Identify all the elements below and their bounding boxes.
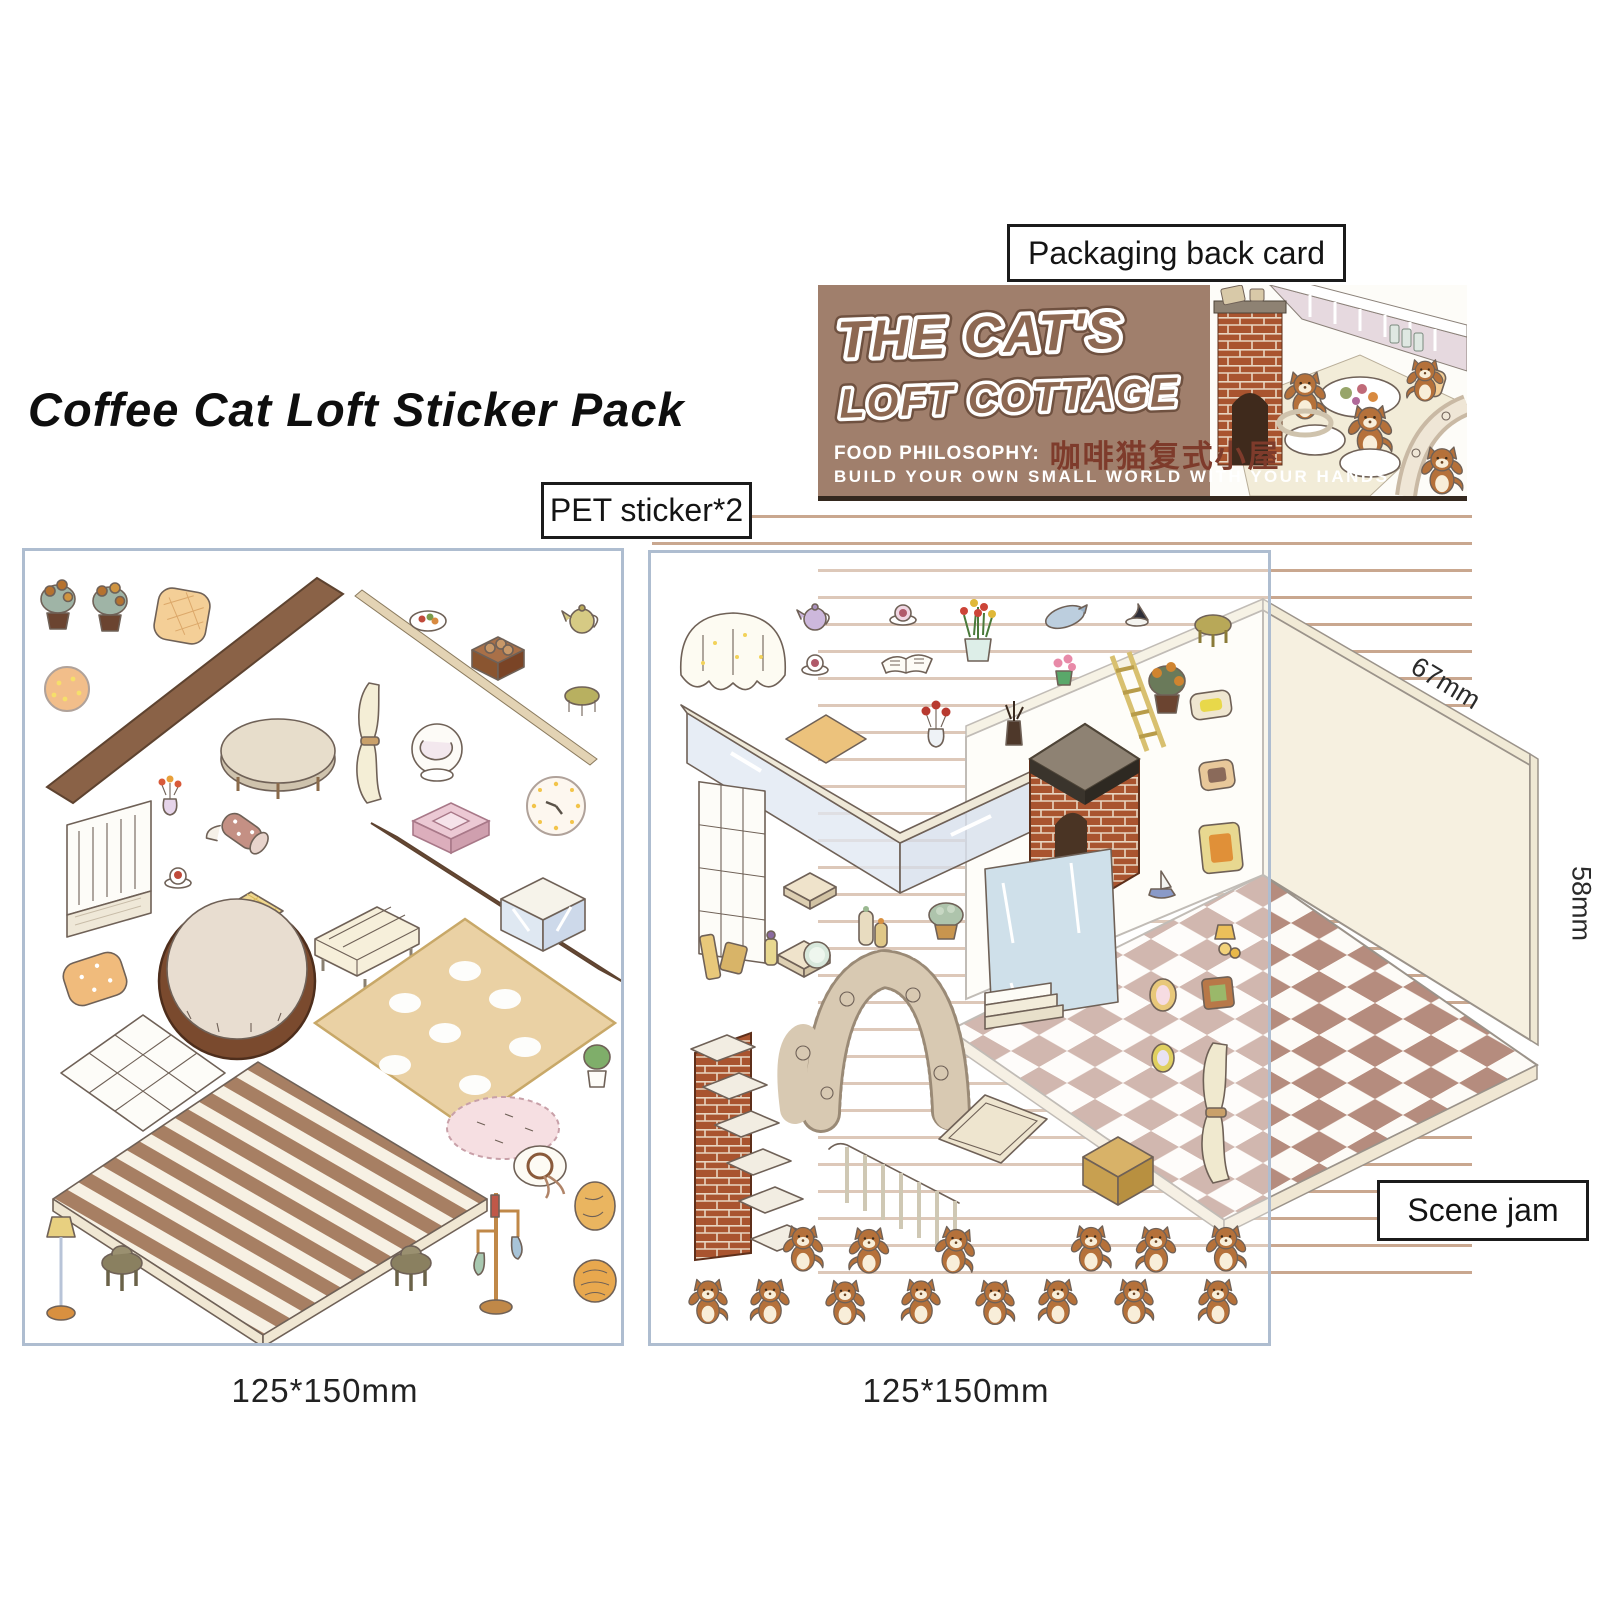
- wall-clock-sticker: [527, 777, 585, 835]
- waffle-cushion-sticker: [152, 586, 212, 646]
- wall-lamp-sticker: [1215, 925, 1240, 958]
- cookie-sticker: [575, 1182, 615, 1230]
- pet-sticker-label: PET sticker*2: [541, 482, 752, 539]
- scene-height-dimension: 58mm: [1566, 861, 1597, 947]
- card-title-line1: THE CAT'S: [836, 302, 1124, 370]
- window-with-steps-sticker: [985, 849, 1118, 1029]
- tied-curtain-sticker: [1202, 1043, 1229, 1183]
- log-crate-sticker: [472, 637, 524, 680]
- scene-jam-label: Scene jam: [1377, 1180, 1589, 1241]
- packaging-back-card: THE CAT'S THE CAT'S LOFT COTTAGE LOFT CO…: [818, 285, 1467, 501]
- oval-table-sticker: [221, 719, 335, 799]
- pet-sticker-text: PET sticker*2: [550, 492, 743, 529]
- page-title: Coffee Cat Loft Sticker Pack: [28, 382, 685, 437]
- potted-plant-sticker: [41, 580, 75, 629]
- tulip-pot-sticker: [960, 599, 996, 661]
- hand-mirror-sticker: [804, 942, 830, 968]
- baby-fence-sticker: [67, 801, 151, 937]
- card-title-line2: LOFT COTTAGE: [839, 369, 1180, 427]
- square-frame-sticker: [1202, 977, 1235, 1010]
- pink-step-shelf-sticker: [413, 803, 489, 853]
- perfume-bottle-sticker: [765, 931, 777, 965]
- teapot-sticker: [797, 604, 829, 630]
- witch-hat-sticker: [1126, 604, 1148, 626]
- cat-sticker-row-1: [781, 1225, 1247, 1276]
- card-tagline: BUILD YOUR OWN SMALL WORLD WITH YOUR HAN…: [834, 467, 1389, 487]
- teapot-sticker: [562, 605, 598, 633]
- fabric-roller-sticker: [205, 806, 272, 869]
- curtain-sticker: [357, 683, 381, 803]
- wooden-stool-sticker: [565, 687, 599, 716]
- wooden-stool-sticker: [1195, 615, 1231, 647]
- tulip-vase-sticker: [159, 776, 182, 816]
- flower-pot-sticker: [1054, 655, 1077, 686]
- floor-lamp-sticker: [47, 1217, 75, 1320]
- open-book-sticker: [882, 655, 932, 673]
- sticker-sheet-right-art: [651, 553, 1268, 1343]
- laundry-chair-sticker: [412, 724, 462, 781]
- seat-cushion-sticker: [784, 873, 836, 909]
- card-title-art: THE CAT'S THE CAT'S LOFT COTTAGE LOFT CO…: [832, 299, 1252, 439]
- plush-arch-sticker: [792, 969, 951, 1113]
- stair-railing-sticker: [829, 1144, 959, 1257]
- sheet-right-size-label: 125*150mm: [846, 1372, 1066, 1410]
- scene-jam-text: Scene jam: [1407, 1192, 1558, 1229]
- picture-frame-sticker: [1198, 759, 1236, 791]
- sunflower-pot-sticker: [1149, 662, 1185, 713]
- sticker-sheet-right: [648, 550, 1271, 1346]
- rose-vase-sticker: [922, 701, 951, 748]
- sticker-sheet-left-art: [25, 551, 621, 1343]
- sheet-left-size-label: 125*150mm: [215, 1372, 435, 1410]
- card-food-philosophy: FOOD PHILOSOPHY:: [834, 443, 1040, 465]
- fruit-plate-sticker: [410, 611, 446, 631]
- teacup-sticker: [165, 868, 191, 888]
- fish-plate-sticker: [1043, 601, 1087, 632]
- candle-jars-sticker: [859, 906, 887, 947]
- dotted-cushion-sticker: [60, 949, 131, 1009]
- teacup-sticker: [802, 655, 828, 675]
- twig-bottle-sticker: [1006, 701, 1023, 745]
- pet-bed-sticker: [159, 899, 315, 1059]
- potted-plant-sticker: [584, 1045, 610, 1087]
- round-rug-sticker: [45, 667, 89, 711]
- picture-frame-sticker: [1199, 822, 1244, 874]
- teacup-sticker: [890, 605, 916, 625]
- packaging-back-card-text: Packaging back card: [1028, 235, 1325, 272]
- tablecloth-table-sticker: [681, 613, 786, 690]
- floor-mat-sticker: [786, 715, 866, 763]
- sticker-sheet-left: [22, 548, 624, 1346]
- glass-counter-sticker: [501, 878, 585, 951]
- oval-frame-sticker: [1152, 1044, 1174, 1072]
- oval-frame-sticker: [1150, 979, 1176, 1011]
- succulent-pot-sticker: [929, 903, 963, 939]
- cat-sticker-row-2: [687, 1279, 1239, 1324]
- packaging-back-card-label: Packaging back card: [1007, 224, 1346, 282]
- picture-frame-sticker: [1189, 689, 1232, 720]
- bread-bun-sticker: [574, 1260, 616, 1302]
- ottoman-box-sticker: [1083, 1137, 1153, 1205]
- sailboat-ornament-sticker: [1149, 871, 1175, 898]
- straw-hat-sticker: [514, 1146, 566, 1198]
- potted-plant-sticker: [93, 583, 127, 631]
- wooden-beam-sticker: [355, 590, 597, 765]
